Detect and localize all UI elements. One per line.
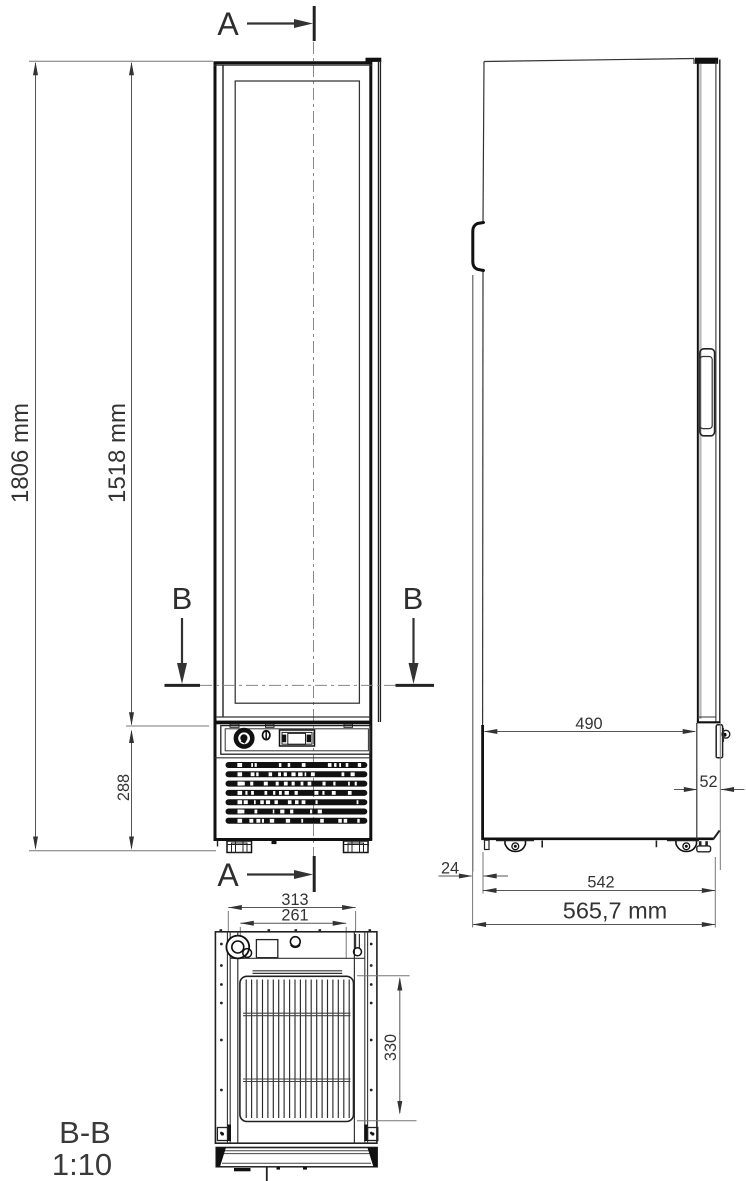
svg-text:261: 261: [281, 907, 308, 925]
svg-text:24: 24: [441, 859, 459, 877]
svg-text:565,7 mm: 565,7 mm: [563, 898, 668, 924]
svg-text:1:10: 1:10: [52, 1147, 112, 1181]
svg-text:A: A: [217, 6, 239, 42]
svg-text:B-B: B-B: [59, 1115, 111, 1150]
svg-text:490: 490: [575, 715, 602, 733]
svg-text:542: 542: [587, 874, 614, 892]
svg-text:330: 330: [382, 1034, 400, 1061]
svg-text:B: B: [403, 581, 424, 616]
svg-text:1518 mm: 1518 mm: [104, 403, 131, 503]
svg-text:288: 288: [115, 774, 133, 801]
svg-text:52: 52: [699, 773, 717, 791]
svg-text:A: A: [217, 857, 239, 893]
svg-text:1806 mm: 1806 mm: [7, 403, 34, 503]
svg-text:B: B: [172, 581, 193, 616]
